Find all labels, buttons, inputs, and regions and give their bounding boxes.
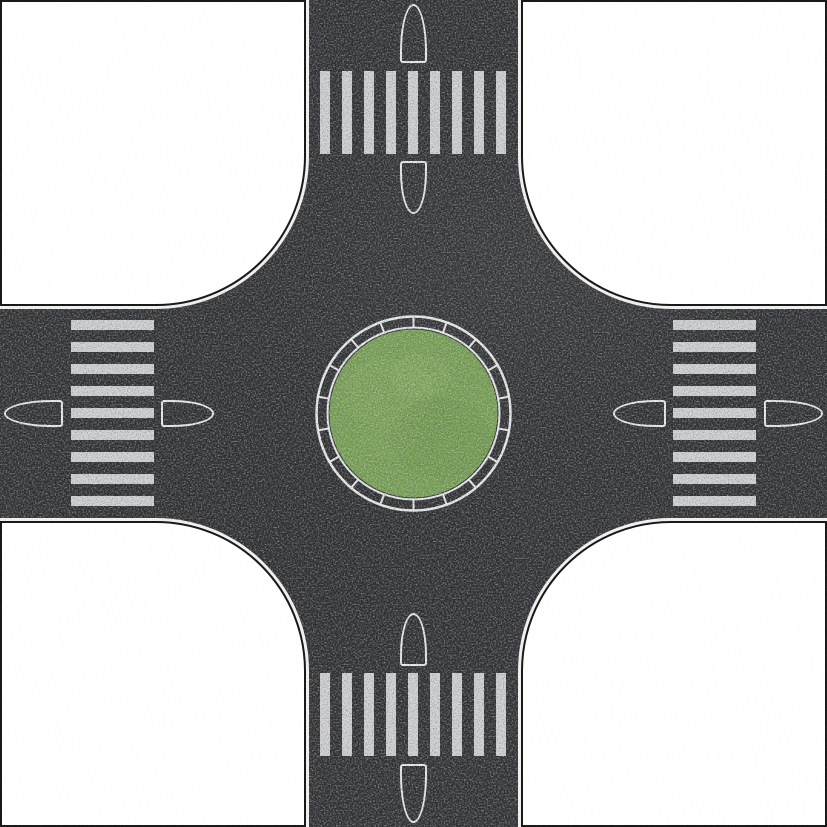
zebra-stripe [71,320,154,330]
crosswalk-east [673,320,756,506]
zebra-stripe [452,673,462,756]
ring-segment-divider [443,493,447,505]
zebra-stripe [364,71,374,154]
zebra-stripe [71,342,154,352]
grass-mottle [362,420,418,460]
zebra-stripe [386,673,396,756]
zebra-stripe [673,342,756,352]
zebra-stripe [364,673,374,756]
zebra-stripe [496,673,506,756]
zebra-stripe [673,474,756,484]
crosswalk-south [320,673,506,756]
zebra-stripe [71,496,154,506]
white-corner-field-bottom-left [0,521,306,827]
roundabout-road-plate [0,0,827,827]
zebra-stripe [320,673,330,756]
ring-segment-divider [380,321,384,333]
zebra-stripe [673,452,756,462]
zebra-stripe [673,408,756,418]
crosswalk-north [320,71,506,154]
zebra-stripe [474,673,484,756]
zebra-stripe [71,452,154,462]
zebra-stripe [320,71,330,154]
ring-segment-divider [351,479,359,489]
zebra-stripe [673,364,756,374]
grass-mottle [390,354,450,398]
zebra-stripe [673,386,756,396]
zebra-stripe [71,474,154,484]
white-corner-field-top-right [521,0,827,306]
zebra-stripe [673,430,756,440]
zebra-stripe [71,430,154,440]
zebra-stripe [430,673,440,756]
roundabout [298,298,529,529]
ring-segment-divider [468,479,476,489]
zebra-stripe [71,408,154,418]
ring-segment-divider [351,338,359,348]
ring-segment-divider [487,456,498,463]
zebra-stripe [71,364,154,374]
crosswalk-west [71,320,154,506]
zebra-stripe [430,71,440,154]
ring-segment-divider [380,493,384,505]
zebra-stripe [673,496,756,506]
zebra-stripe [474,71,484,154]
zebra-stripe [496,71,506,154]
zebra-stripe [71,386,154,396]
ring-segment-divider [487,365,498,372]
zebra-stripe [342,71,352,154]
ring-segment-divider [443,321,447,333]
zebra-stripe [342,673,352,756]
zebra-stripe [408,71,418,154]
zebra-stripe [386,71,396,154]
white-corner-field-top-left [0,0,306,306]
ring-segment-divider [329,456,340,463]
zebra-stripe [673,320,756,330]
zebra-stripe [452,71,462,154]
ring-segment-divider [329,365,340,372]
ring-segment-divider [468,338,476,348]
zebra-stripe [408,673,418,756]
white-corner-field-bottom-right [521,521,827,827]
